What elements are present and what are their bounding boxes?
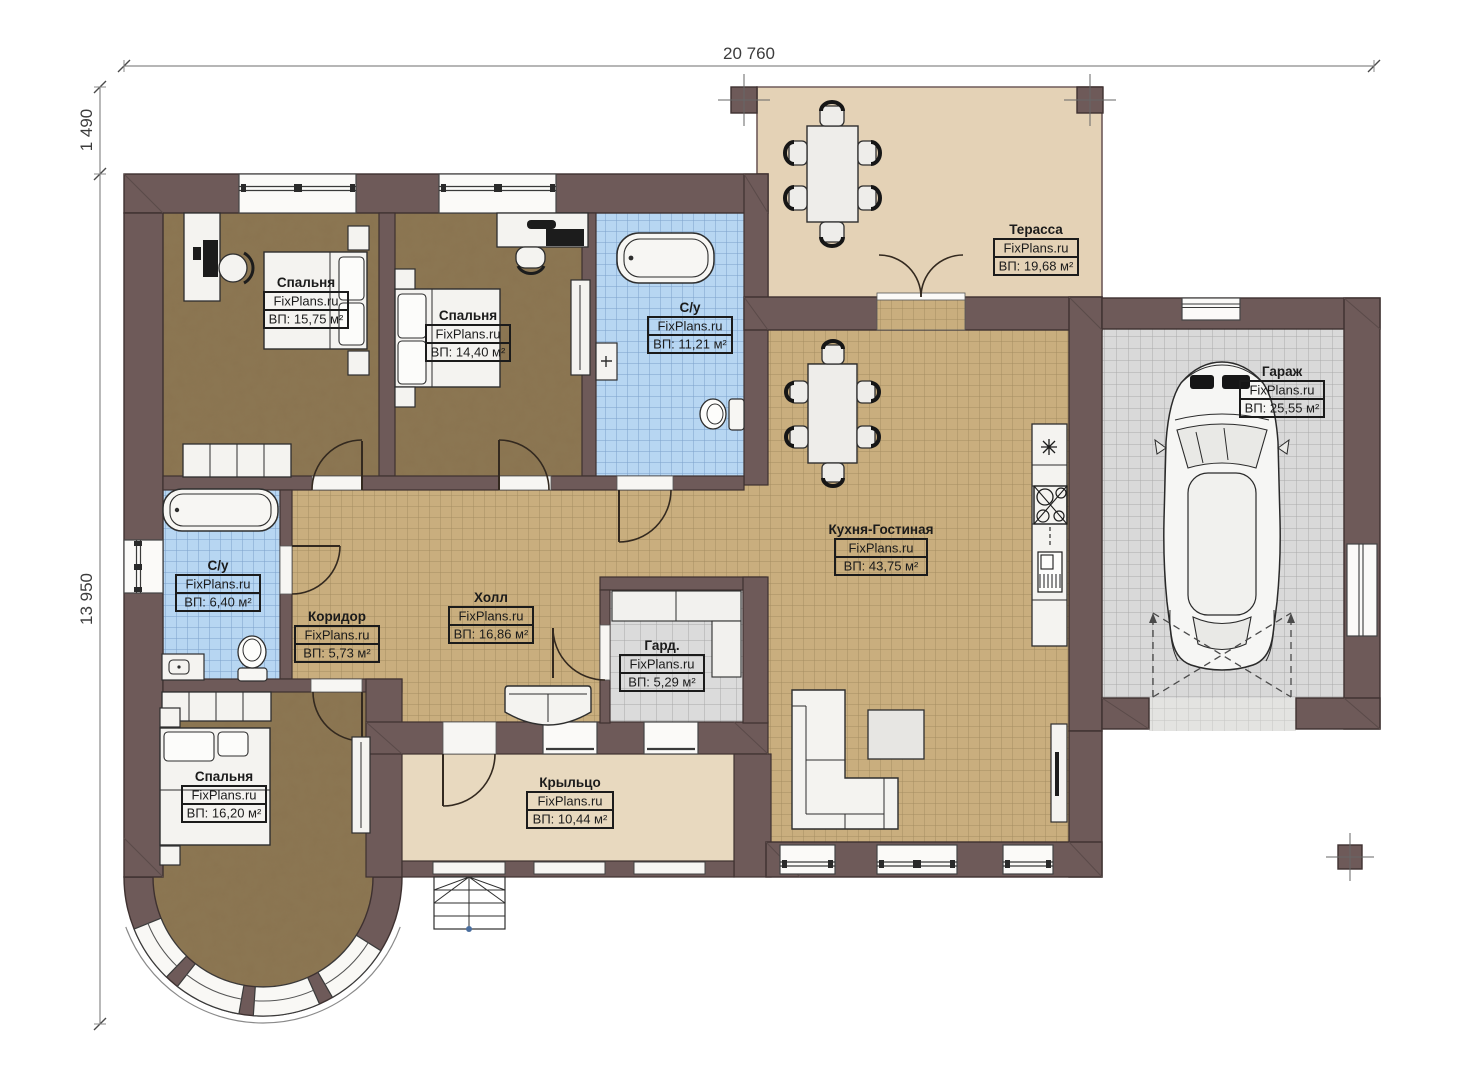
- svg-text:FixPlans.ru: FixPlans.ru: [458, 609, 523, 624]
- svg-text:FixPlans.ru: FixPlans.ru: [537, 794, 602, 809]
- svg-text:Коридор: Коридор: [308, 609, 366, 624]
- svg-text:ВП: 15,75 м²: ВП: 15,75 м²: [269, 312, 344, 327]
- svg-text:ВП: 16,86 м²: ВП: 16,86 м²: [454, 627, 529, 642]
- svg-text:Гараж: Гараж: [1262, 364, 1303, 379]
- svg-text:Спальня: Спальня: [277, 275, 335, 290]
- svg-text:ВП: 11,21 м²: ВП: 11,21 м²: [653, 337, 727, 352]
- svg-text:20 760: 20 760: [723, 44, 775, 63]
- svg-text:FixPlans.ru: FixPlans.ru: [304, 628, 369, 643]
- svg-text:Терасса: Терасса: [1009, 222, 1063, 237]
- svg-text:FixPlans.ru: FixPlans.ru: [1249, 383, 1314, 398]
- svg-text:ВП: 25,55 м²: ВП: 25,55 м²: [1245, 401, 1320, 416]
- svg-text:Крыльцо: Крыльцо: [539, 775, 600, 790]
- svg-text:ВП: 43,75 м²: ВП: 43,75 м²: [844, 559, 919, 574]
- svg-text:1 490: 1 490: [77, 109, 96, 152]
- svg-text:С/у: С/у: [679, 300, 701, 315]
- svg-text:Холл: Холл: [474, 590, 508, 605]
- svg-text:FixPlans.ru: FixPlans.ru: [273, 294, 338, 309]
- svg-text:ВП: 16,20 м²: ВП: 16,20 м²: [187, 806, 262, 821]
- svg-text:ВП: 6,40 м²: ВП: 6,40 м²: [184, 595, 252, 610]
- svg-text:ВП: 10,44 м²: ВП: 10,44 м²: [533, 812, 608, 827]
- svg-text:13 950: 13 950: [77, 573, 96, 625]
- svg-text:ВП: 19,68 м²: ВП: 19,68 м²: [999, 259, 1074, 274]
- svg-text:FixPlans.ru: FixPlans.ru: [191, 788, 256, 803]
- svg-text:FixPlans.ru: FixPlans.ru: [848, 541, 913, 556]
- svg-text:Спальня: Спальня: [195, 769, 253, 784]
- svg-text:Гард.: Гард.: [644, 638, 679, 653]
- svg-text:FixPlans.ru: FixPlans.ru: [629, 657, 694, 672]
- svg-text:FixPlans.ru: FixPlans.ru: [1003, 241, 1068, 256]
- svg-text:ВП: 5,73 м²: ВП: 5,73 м²: [303, 646, 371, 661]
- svg-text:ВП: 5,29 м²: ВП: 5,29 м²: [628, 675, 696, 690]
- svg-text:FixPlans.ru: FixPlans.ru: [657, 319, 722, 334]
- svg-text:ВП: 14,40 м²: ВП: 14,40 м²: [431, 345, 506, 360]
- svg-text:Спальня: Спальня: [439, 308, 497, 323]
- svg-text:Кухня-Гостиная: Кухня-Гостиная: [829, 522, 934, 537]
- svg-text:С/у: С/у: [207, 558, 229, 573]
- svg-text:FixPlans.ru: FixPlans.ru: [435, 327, 500, 342]
- svg-text:FixPlans.ru: FixPlans.ru: [185, 577, 250, 592]
